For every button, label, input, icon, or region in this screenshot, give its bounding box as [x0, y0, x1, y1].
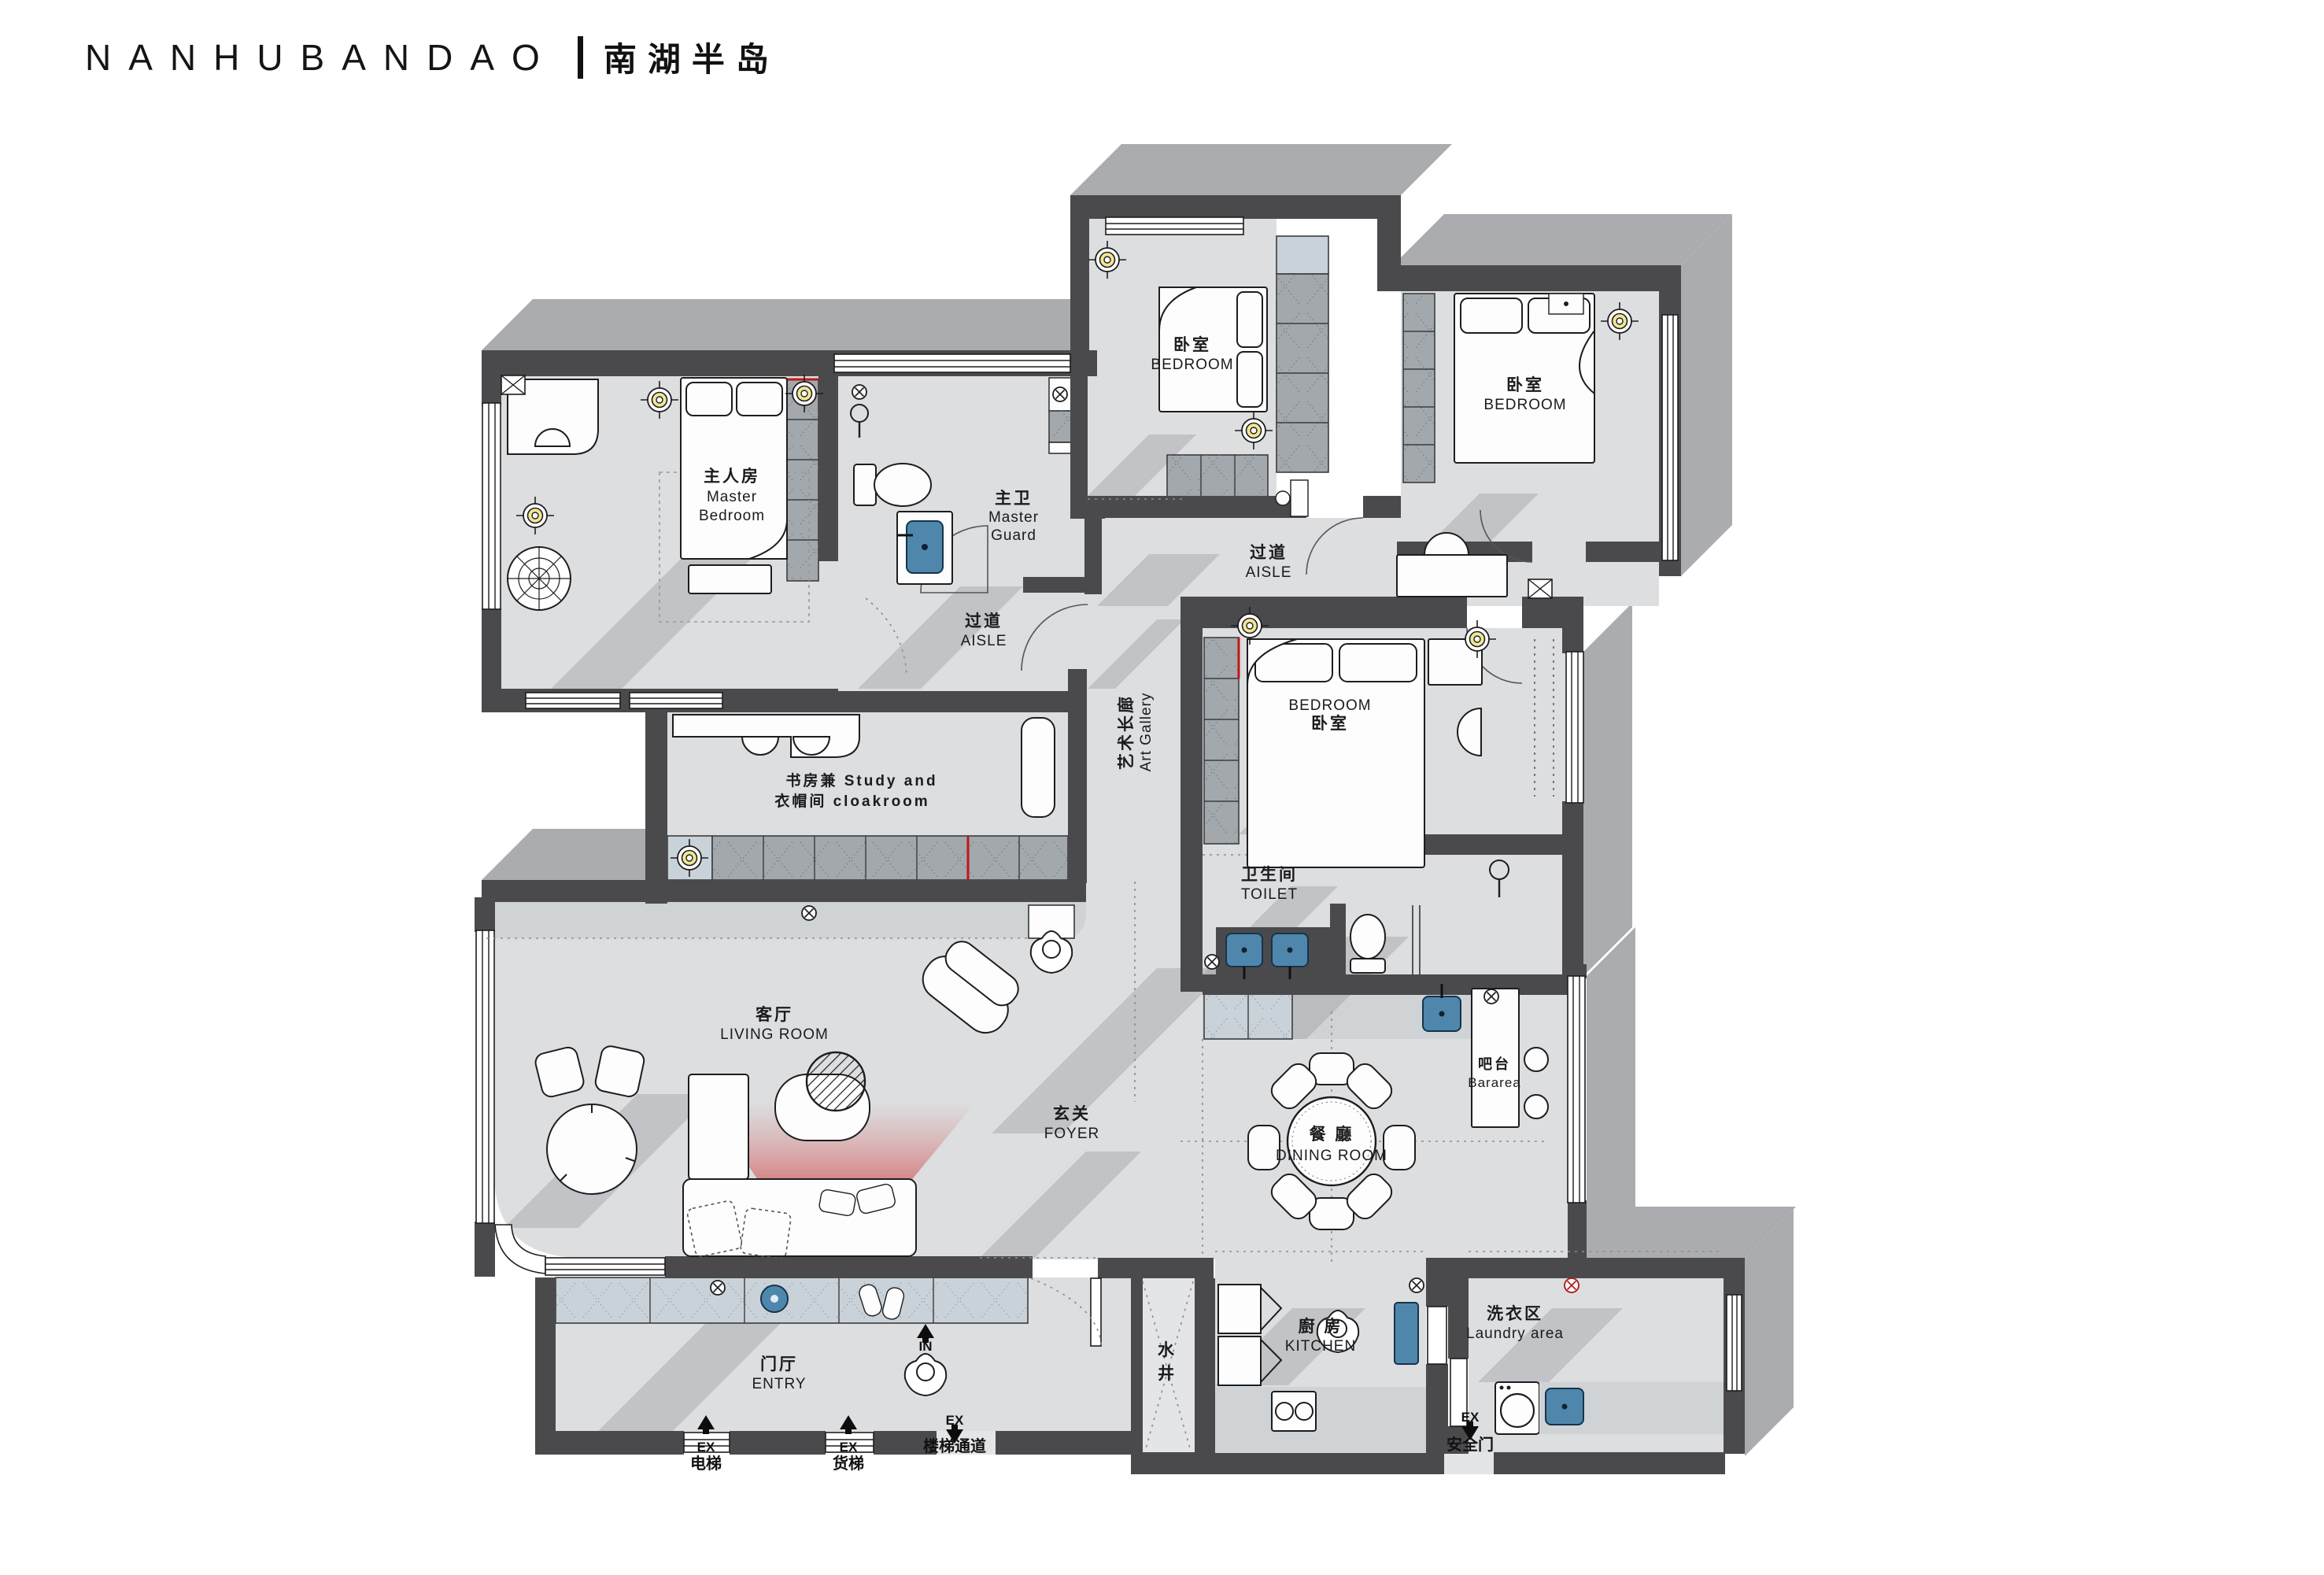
title-divider-bar	[578, 36, 583, 79]
label-master-guard: 主卫 Master Guard	[988, 490, 1039, 544]
svg-text:AISLE: AISLE	[961, 633, 1007, 649]
svg-text:Master: Master	[988, 509, 1039, 526]
window-dining-right	[1568, 976, 1585, 1203]
ex-label-elevator: EX	[697, 1440, 715, 1455]
kitchen-stove	[1272, 1392, 1316, 1431]
safety-door-label: 安全门	[1446, 1435, 1494, 1454]
window-bedroom2-right	[1662, 315, 1678, 560]
toilet-wc	[1350, 915, 1385, 973]
kitchen-counter	[1215, 1387, 1426, 1453]
svg-text:客厅: 客厅	[756, 1005, 793, 1024]
window-bedroom-right	[1566, 652, 1583, 803]
svg-text:BEDROOM: BEDROOM	[1483, 397, 1566, 413]
window-master-left	[482, 403, 501, 609]
svg-text:艺术长廊: 艺术长廊	[1117, 694, 1136, 770]
column-xbox-master	[501, 375, 525, 394]
svg-text:卧室: 卧室	[1506, 375, 1544, 394]
bar-stool-1	[1524, 1048, 1548, 1071]
aisle-console	[1397, 555, 1507, 597]
washing-machine	[1495, 1382, 1539, 1434]
ex-label-freight: EX	[840, 1440, 858, 1455]
window-laundry-right	[1727, 1295, 1742, 1391]
svg-text:Laundry area: Laundry area	[1466, 1325, 1564, 1342]
window-bedroom1-top	[1106, 217, 1243, 235]
bedroom-right-wardrobe	[1204, 638, 1239, 844]
svg-text:LIVING ROOM: LIVING ROOM	[720, 1026, 829, 1043]
svg-text:廚 房: 廚 房	[1299, 1317, 1343, 1336]
svg-text:Art Gallery: Art Gallery	[1138, 693, 1155, 772]
walkway-strip	[486, 902, 1086, 938]
svg-text:Bedroom: Bedroom	[699, 508, 765, 524]
svg-text:井: 井	[1158, 1365, 1177, 1383]
bedroom1-door-leaf	[1291, 480, 1308, 516]
window-living-left	[476, 930, 494, 1223]
window-living-bottom	[545, 1258, 665, 1275]
svg-text:Guard: Guard	[991, 527, 1036, 544]
svg-text:Master: Master	[707, 489, 757, 505]
decor-hatched-circle	[807, 1052, 865, 1111]
bedroom1-dresser	[1167, 455, 1268, 498]
study-wardrobe-strip	[667, 836, 1068, 880]
svg-text:卧室: 卧室	[1311, 714, 1349, 733]
svg-text:水: 水	[1158, 1341, 1177, 1359]
svg-text:卧室: 卧室	[1173, 335, 1211, 354]
label-master-bedroom: 主人房 Master Bedroom	[699, 467, 765, 524]
svg-text:AISLE: AISLE	[1246, 564, 1292, 581]
project-title: NANHUBANDAO 南湖半岛	[85, 33, 780, 81]
in-label: IN	[919, 1339, 933, 1354]
entry-cabinet-strip	[556, 1277, 1028, 1323]
guard-shelf-column	[1049, 378, 1071, 453]
bar-stool-2	[1524, 1095, 1548, 1118]
floorplan-drawing: EX 电梯 EX 货梯 EX 楼梯通道 EX 安全门 IN 主人房 Master…	[0, 0, 2324, 1575]
master-bed-bench	[689, 565, 771, 593]
guard-sink	[897, 512, 952, 584]
svg-text:吧台: 吧台	[1478, 1056, 1511, 1072]
kitchen-tall-sink-unit	[1395, 1303, 1418, 1364]
bedroom1-door-knob	[1276, 491, 1290, 505]
window-master-top	[834, 354, 1070, 372]
svg-text:BEDROOM: BEDROOM	[1288, 697, 1371, 714]
svg-text:门厅: 门厅	[760, 1355, 798, 1374]
vanity-strip-cells	[1204, 993, 1292, 1039]
svg-text:餐 廳: 餐 廳	[1310, 1125, 1354, 1144]
svg-text:Bararea: Bararea	[1468, 1075, 1520, 1090]
master-plant-spiral	[508, 547, 571, 610]
master-wardrobe	[787, 379, 818, 581]
svg-text:主人房: 主人房	[704, 467, 760, 486]
study-bench	[1022, 718, 1055, 817]
svg-text:BEDROOM: BEDROOM	[1151, 357, 1233, 373]
svg-text:玄关: 玄关	[1053, 1104, 1091, 1123]
bedroom-right-bed	[1247, 639, 1424, 867]
freight-elevator-label: 货梯	[833, 1454, 864, 1473]
svg-text:过道: 过道	[965, 612, 1003, 630]
stair-passage-label: 楼梯通道	[923, 1436, 986, 1455]
svg-text:主卫: 主卫	[995, 490, 1033, 508]
title-latin: NANHUBANDAO	[85, 36, 557, 79]
svg-text:TOILET: TOILET	[1241, 886, 1298, 903]
guard-toilet	[854, 464, 931, 506]
svg-text:DINING ROOM: DINING ROOM	[1276, 1148, 1387, 1164]
svg-text:洗衣区: 洗衣区	[1487, 1304, 1543, 1323]
kitchen-door-leaf	[1428, 1307, 1446, 1364]
svg-text:KITCHEN: KITCHEN	[1285, 1338, 1356, 1355]
svg-text:衣帽间 cloakroom: 衣帽间 cloakroom	[774, 792, 929, 810]
bedroom1-wardrobe	[1277, 236, 1328, 472]
floorplan-page: NANHUBANDAO 南湖半岛	[0, 0, 2324, 1575]
column-xbox-aisle	[1528, 579, 1552, 598]
round-side-table	[547, 1104, 637, 1194]
svg-text:书房兼 Study and: 书房兼 Study and	[785, 771, 937, 789]
bedroom2-closet	[1403, 294, 1435, 482]
title-chinese: 南湖半岛	[604, 33, 780, 81]
elevator-label: 电梯	[690, 1454, 722, 1473]
pouf-2	[594, 1044, 646, 1098]
svg-text:FOYER: FOYER	[1044, 1126, 1099, 1142]
svg-text:过道: 过道	[1250, 543, 1288, 562]
svg-text:卫生间: 卫生间	[1241, 865, 1298, 884]
svg-text:ENTRY: ENTRY	[752, 1376, 806, 1392]
